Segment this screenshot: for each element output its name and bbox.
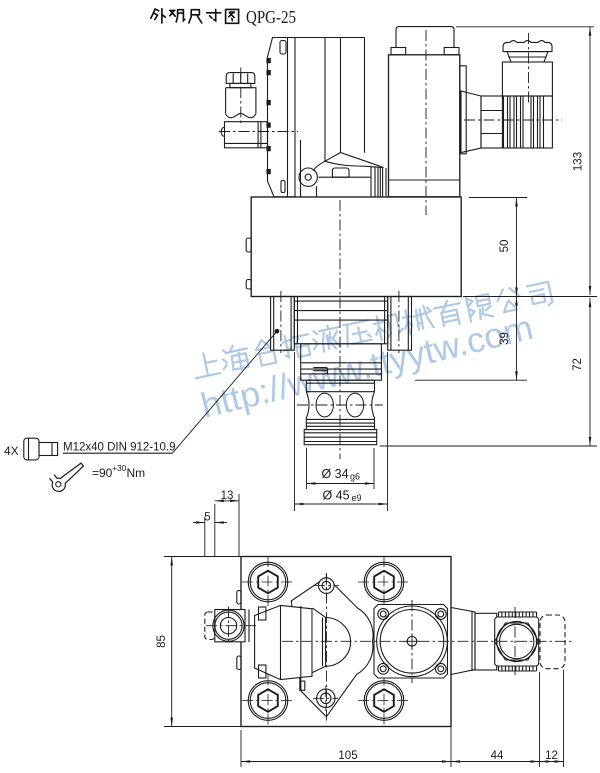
svg-text:50: 50 xyxy=(499,240,511,253)
svg-text:133: 133 xyxy=(573,152,585,171)
svg-text:105: 105 xyxy=(338,750,357,762)
svg-text:g6: g6 xyxy=(350,472,360,482)
svg-text:5: 5 xyxy=(204,512,210,524)
svg-text:39: 39 xyxy=(499,332,511,345)
svg-text:85: 85 xyxy=(156,635,168,648)
svg-text:Ø 45: Ø 45 xyxy=(322,489,349,503)
svg-text:Nm: Nm xyxy=(127,466,146,480)
svg-text:4X: 4X xyxy=(4,444,19,458)
svg-text:Ø 34: Ø 34 xyxy=(321,467,348,481)
svg-text:13: 13 xyxy=(221,490,234,502)
svg-text:+30: +30 xyxy=(112,463,127,473)
svg-text:e9: e9 xyxy=(351,493,361,503)
svg-text:44: 44 xyxy=(491,750,504,762)
svg-text:M12x40 DIN 912-10.9: M12x40 DIN 912-10.9 xyxy=(63,442,176,454)
svg-text:QPG-25: QPG-25 xyxy=(246,7,296,27)
svg-text:72: 72 xyxy=(572,358,584,371)
svg-text:12: 12 xyxy=(545,750,558,762)
svg-text:=90: =90 xyxy=(92,466,113,480)
